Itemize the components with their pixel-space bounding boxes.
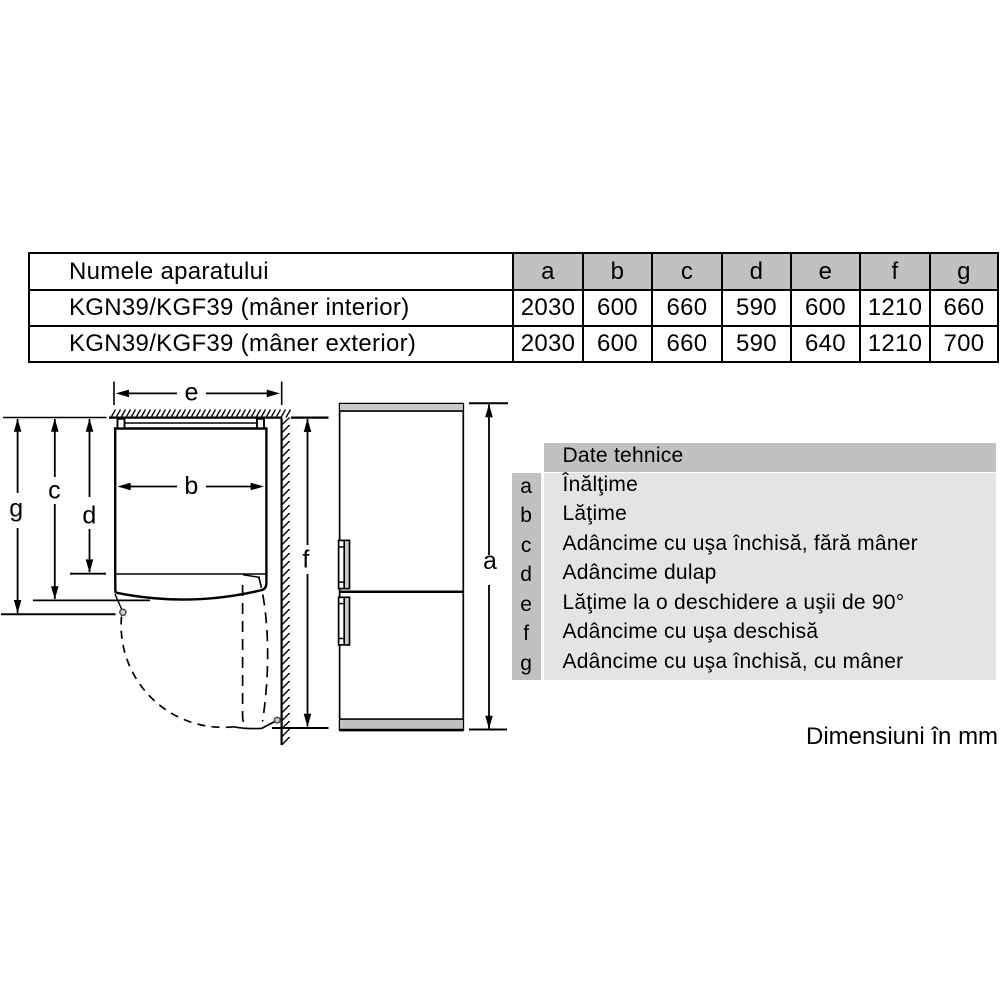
svg-text:b: b <box>184 472 198 500</box>
svg-text:a: a <box>483 547 497 575</box>
svg-text:d: d <box>82 502 96 530</box>
svg-text:e: e <box>185 379 199 407</box>
svg-text:g: g <box>9 495 23 523</box>
svg-text:c: c <box>48 477 61 505</box>
svg-text:f: f <box>302 546 309 574</box>
